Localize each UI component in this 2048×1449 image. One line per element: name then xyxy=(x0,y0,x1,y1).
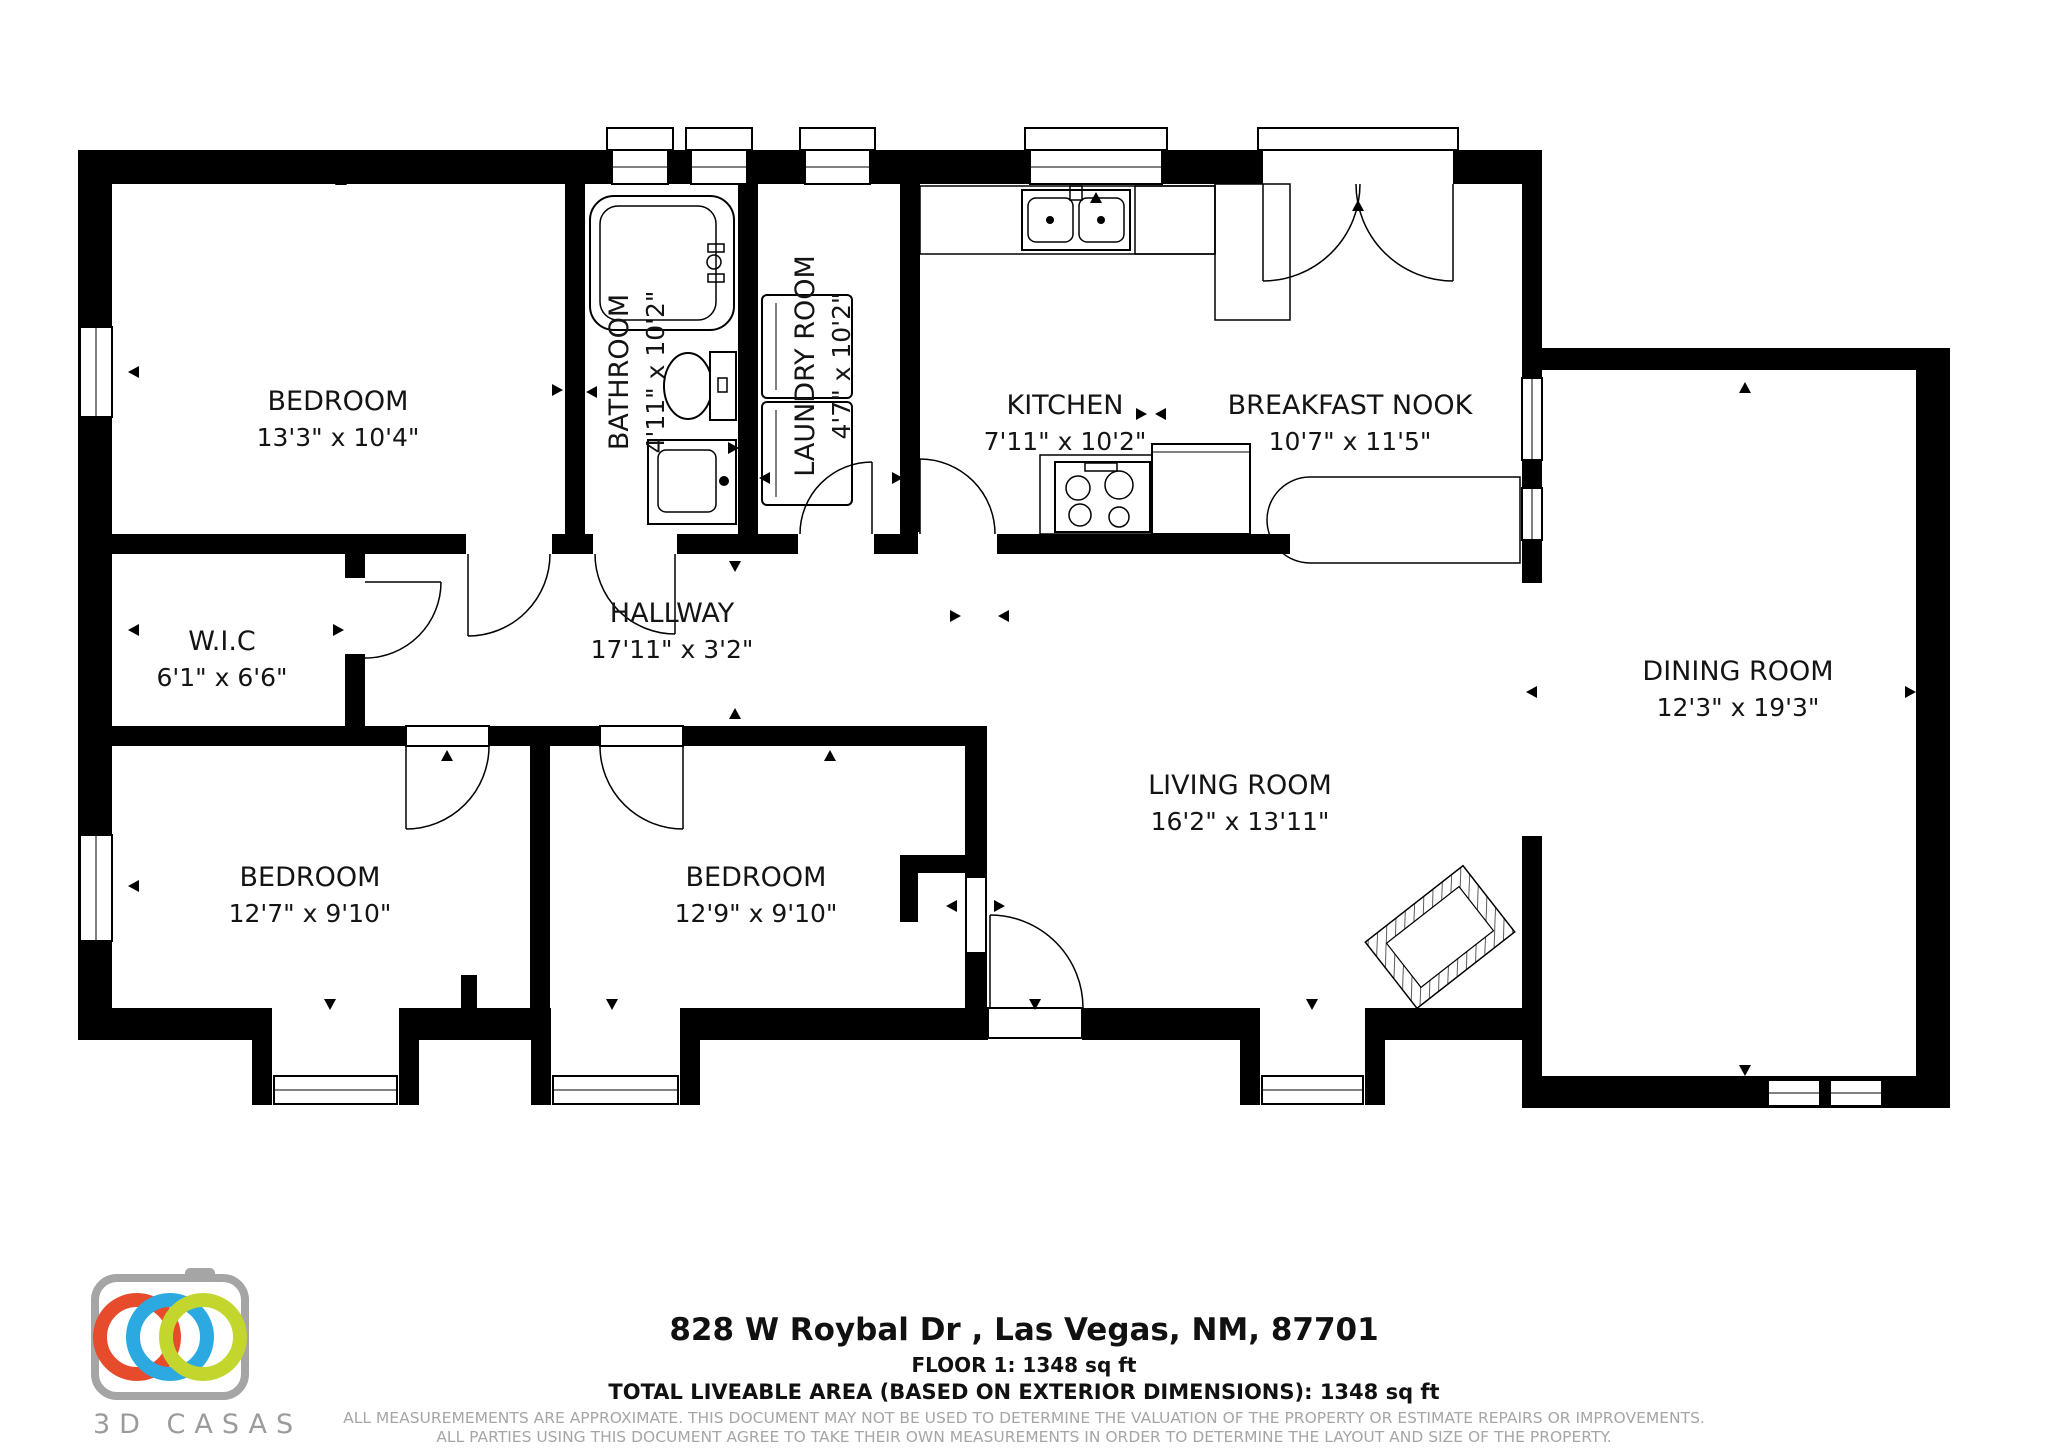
disclaimer-line-1: ALL MEASUREMEMENTS ARE APPROXIMATE. THIS… xyxy=(343,1409,1705,1427)
address-line: 828 W Roybal Dr , Las Vegas, NM, 87701 xyxy=(669,1312,1378,1348)
french-door-sill xyxy=(1258,128,1458,150)
dimension-arrow xyxy=(552,384,563,396)
dimension-arrow xyxy=(729,708,741,719)
room-label-bedroom-1: BEDROOM xyxy=(268,386,409,417)
window-sill xyxy=(686,128,752,150)
room-dims-bedroom-2: 12'7" x 9'10" xyxy=(229,899,392,928)
fireplace xyxy=(1365,866,1514,1009)
room-label-bathroom: BATHROOM xyxy=(604,294,635,450)
dimension-arrow xyxy=(333,624,344,636)
window-sill xyxy=(607,128,673,150)
dimension-arrow xyxy=(586,386,597,398)
logo-shutter-tab xyxy=(185,1268,215,1281)
bedroom3-door xyxy=(600,746,683,829)
front-door-threshold xyxy=(988,1008,1082,1038)
dimension-arrow xyxy=(128,624,139,636)
bedroom1-door xyxy=(468,554,550,636)
room-dims-kitchen: 7'11" x 10'2" xyxy=(984,427,1147,456)
dimension-arrow xyxy=(729,561,741,572)
refrigerator xyxy=(1152,444,1250,534)
dimension-arrow xyxy=(128,366,139,378)
dimension-arrow xyxy=(946,900,957,912)
room-label-breakfast-nook: BREAKFAST NOOK xyxy=(1228,390,1474,421)
kitchen-sink xyxy=(1022,186,1130,250)
floorplan-canvas: BEDROOM 13'3" x 10'4" BATHROOM 4'11" x 1… xyxy=(0,0,2048,1449)
kitchen-door xyxy=(920,459,995,534)
peninsula-counter xyxy=(1267,477,1520,563)
footer-text: 828 W Roybal Dr , Las Vegas, NM, 87701 F… xyxy=(343,1312,1705,1446)
window-sill xyxy=(1025,128,1167,150)
room-dims-breakfast-nook: 10'7" x 11'5" xyxy=(1269,427,1432,456)
floor-area-line: FLOOR 1: 1348 sq ft xyxy=(911,1353,1136,1377)
dimension-arrow xyxy=(441,750,453,761)
dimension-arrow xyxy=(1739,1065,1751,1076)
dimension-arrow xyxy=(824,750,836,761)
disclaimer-line-2: ALL PARTIES USING THIS DOCUMENT AGREE TO… xyxy=(436,1428,1611,1446)
total-area-line: TOTAL LIVEABLE AREA (BASED ON EXTERIOR D… xyxy=(608,1380,1439,1404)
room-dims-laundry: 4'7" x 10'2" xyxy=(827,293,856,440)
logo-brand-text: 3D CASAS xyxy=(93,1409,302,1440)
toilet xyxy=(664,352,736,420)
room-label-living-room: LIVING ROOM xyxy=(1148,770,1332,801)
room-dims-bedroom-1: 13'3" x 10'4" xyxy=(257,423,420,452)
room-dims-living-room: 16'2" x 13'11" xyxy=(1151,807,1330,836)
room-dims-bedroom-3: 12'9" x 9'10" xyxy=(675,899,838,928)
dimension-arrow xyxy=(1306,999,1318,1010)
room-label-bedroom-3: BEDROOM xyxy=(686,862,827,893)
dimension-arrow xyxy=(1136,408,1147,420)
bedroom2-door-threshold xyxy=(406,726,489,746)
dimension-arrow xyxy=(994,900,1005,912)
room-label-wic: W.I.C xyxy=(188,626,256,657)
dimension-arrow xyxy=(606,999,618,1010)
room-label-bedroom-2: BEDROOM xyxy=(240,862,381,893)
room-label-kitchen: KITCHEN xyxy=(1007,390,1124,421)
logo: 3D CASAS xyxy=(93,1268,302,1440)
kitchen-tall-cabinet xyxy=(1215,184,1290,320)
dimension-arrow xyxy=(1905,686,1916,698)
room-dims-dining-room: 12'3" x 19'3" xyxy=(1657,693,1820,722)
front-door xyxy=(990,915,1083,1008)
dimension-arrow xyxy=(1739,382,1751,393)
dimension-arrow xyxy=(324,999,336,1010)
dimension-arrow xyxy=(128,880,139,892)
room-dims-wic: 6'1" x 6'6" xyxy=(156,663,287,692)
floorplan-page: BEDROOM 13'3" x 10'4" BATHROOM 4'11" x 1… xyxy=(0,0,2048,1449)
dimension-arrow xyxy=(950,610,961,622)
dishwasher xyxy=(1135,186,1215,254)
room-dims-bathroom: 4'11" x 10'2" xyxy=(641,291,670,454)
room-label-dining-room: DINING ROOM xyxy=(1642,656,1833,687)
dimension-arrow xyxy=(1352,200,1364,211)
room-label-hallway: HALLWAY xyxy=(610,598,735,629)
window-sill xyxy=(800,128,875,150)
dimension-arrow xyxy=(1526,686,1537,698)
room-dims-hallway: 17'11" x 3'2" xyxy=(591,635,754,664)
dimension-arrows xyxy=(128,174,1916,1076)
room-label-laundry: LAUNDRY ROOM xyxy=(790,255,821,477)
bedroom3-door-threshold xyxy=(600,726,683,746)
french-doors xyxy=(1263,184,1453,281)
dimension-arrow xyxy=(1155,408,1166,420)
dimension-arrow xyxy=(998,610,1009,622)
wic-door xyxy=(365,582,441,658)
